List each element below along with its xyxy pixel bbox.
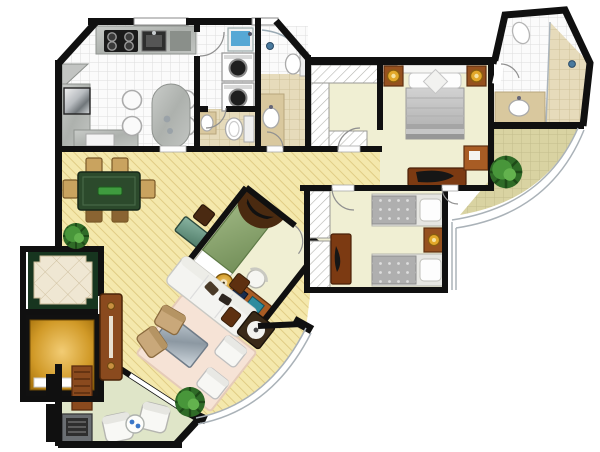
twin-bed-2 bbox=[372, 254, 445, 286]
shower-head bbox=[267, 43, 274, 50]
twin-bed-1 bbox=[372, 194, 445, 226]
wardrobe bbox=[308, 191, 330, 238]
washer-panel bbox=[224, 55, 252, 59]
door-sill bbox=[267, 146, 283, 152]
ensuite-washbasin bbox=[509, 100, 529, 116]
counter-board bbox=[170, 31, 191, 51]
closet-shelf bbox=[311, 83, 329, 149]
entry-door-slot bbox=[109, 316, 113, 358]
dryer-door bbox=[230, 90, 247, 107]
kitchen-faucet bbox=[152, 31, 156, 35]
suite-desk-paper bbox=[469, 151, 480, 160]
polka-blanket bbox=[372, 196, 416, 224]
table-runner bbox=[98, 187, 122, 195]
wc-toilet-tank bbox=[244, 116, 254, 142]
oven-inset bbox=[86, 134, 114, 146]
chair bbox=[63, 180, 78, 198]
kitchen-sink-basin bbox=[146, 35, 162, 47]
drinks-table bbox=[126, 415, 144, 433]
door-sill bbox=[442, 185, 458, 191]
stool bbox=[123, 91, 142, 110]
decor-dot bbox=[164, 116, 171, 123]
entry-door-knob bbox=[108, 363, 115, 370]
blanket-fold bbox=[406, 134, 464, 139]
ensuite-faucet bbox=[517, 96, 521, 100]
plant bbox=[175, 387, 205, 417]
bath-washbasin bbox=[263, 108, 279, 128]
stool bbox=[123, 117, 142, 136]
refrigerator bbox=[64, 88, 90, 114]
polka-blanket bbox=[372, 256, 416, 284]
floor-plan-drawing bbox=[0, 0, 600, 452]
door-sill bbox=[160, 146, 186, 152]
decorative-marble-floor bbox=[34, 256, 92, 304]
pillow bbox=[420, 259, 441, 281]
blanket-fold bbox=[406, 124, 464, 129]
pillow bbox=[420, 199, 441, 221]
door-sill bbox=[332, 185, 354, 191]
door-sill bbox=[338, 146, 360, 152]
twin-dresser bbox=[331, 234, 351, 284]
breakfast-peninsula bbox=[152, 84, 190, 148]
blanket-fold bbox=[406, 129, 464, 134]
wardrobe bbox=[308, 241, 330, 288]
floor-plan-canvas bbox=[0, 0, 600, 452]
entry-door-knob bbox=[108, 303, 115, 310]
wc-washbasin bbox=[201, 115, 213, 131]
plant bbox=[63, 223, 89, 249]
chair bbox=[140, 180, 155, 198]
plant bbox=[490, 156, 523, 189]
dryer-panel bbox=[224, 85, 252, 89]
ensuite-shower-knob bbox=[569, 61, 576, 68]
laundry-tub-water bbox=[231, 31, 250, 46]
ensuite-door-gap bbox=[496, 62, 501, 84]
bath-faucet bbox=[269, 105, 273, 109]
decor-dot bbox=[167, 128, 173, 134]
tub-faucet bbox=[248, 32, 252, 36]
washer-door bbox=[230, 60, 247, 77]
bath-toilet bbox=[286, 54, 301, 74]
window-sill bbox=[134, 18, 188, 25]
